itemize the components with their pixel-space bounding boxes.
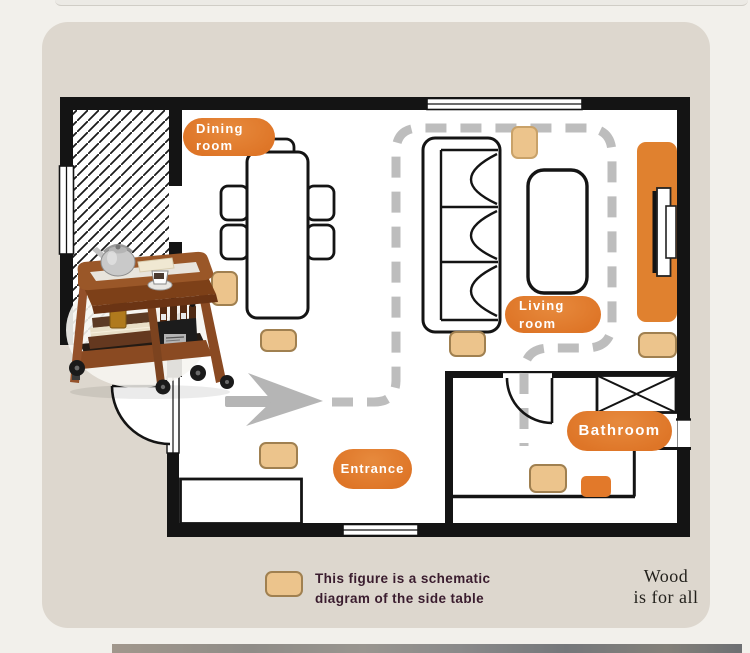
badge-label: Living	[519, 297, 601, 314]
brand-mark: Wood is for all	[625, 566, 707, 608]
badge-label: Dining	[196, 120, 275, 137]
top-window	[427, 99, 582, 110]
bathroom-right-window	[676, 420, 691, 448]
legend-text: This figure is a schematic diagram of th…	[315, 569, 490, 610]
dining-chair	[221, 186, 248, 220]
bathroom-fixture-icon	[597, 376, 676, 413]
dining-table	[247, 152, 308, 318]
legend-line-2: diagram of the side table	[315, 589, 490, 609]
badge-label: room	[519, 315, 601, 332]
side-table-marker	[639, 333, 676, 357]
side-table-marker	[450, 332, 485, 356]
legend: This figure is a schematic diagram of th…	[265, 569, 490, 610]
brand-line-1: Wood	[625, 566, 707, 587]
side-table-marker	[260, 443, 297, 468]
tv-cabinet	[637, 142, 677, 322]
dining-chair	[221, 225, 248, 259]
living-room-badge: Living room	[505, 296, 601, 333]
bathroom-orange-marker	[581, 476, 611, 497]
legend-side-table-swatch	[265, 571, 303, 597]
dining-chair	[307, 186, 334, 220]
bathroom-badge: Bathroom	[567, 411, 672, 451]
legend-line-1: This figure is a schematic	[315, 569, 490, 589]
left-window	[60, 166, 74, 254]
next-section-edge	[112, 644, 742, 653]
entrance-badge: Entrance	[333, 449, 412, 489]
dining-chair	[307, 225, 334, 259]
tv-mount	[666, 206, 676, 258]
floor-plan	[0, 0, 750, 653]
bottom-window	[343, 525, 418, 536]
side-table-marker	[261, 330, 296, 351]
hall-divider-wall	[445, 371, 453, 523]
coffee-table	[528, 170, 587, 293]
side-table-marker	[530, 465, 566, 492]
balcony-opening	[169, 186, 182, 242]
dining-room-badge: Dining room	[183, 118, 275, 156]
badge-label: room	[196, 137, 275, 154]
shoe-cabinet	[181, 479, 302, 524]
badge-label: Entrance	[333, 460, 412, 477]
side-table-marker	[512, 127, 537, 158]
sofa	[423, 138, 500, 332]
brand-line-2: is for all	[625, 587, 707, 608]
badge-label: Bathroom	[567, 421, 672, 441]
